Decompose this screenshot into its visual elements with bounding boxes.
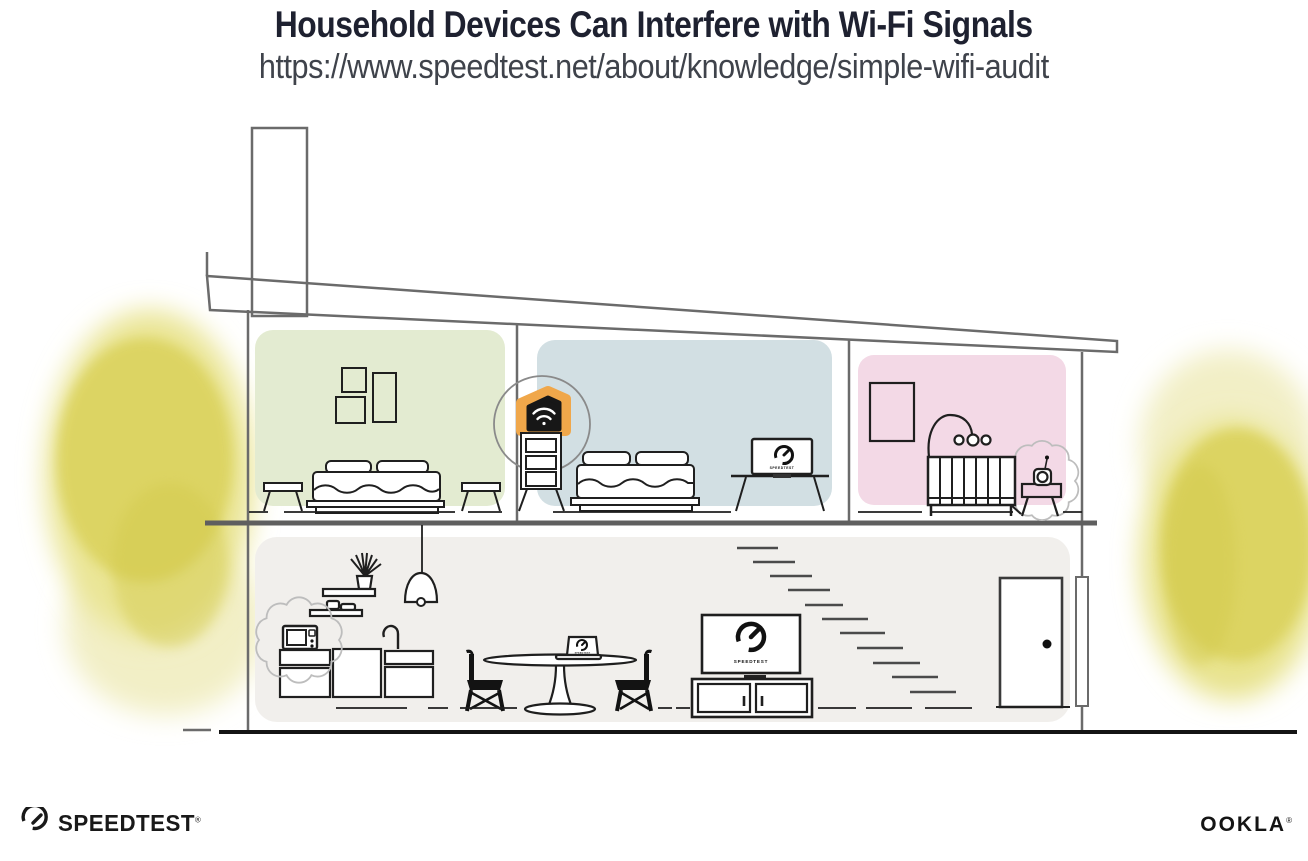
registered-mark: ® xyxy=(195,815,201,824)
shelf xyxy=(323,589,375,596)
source-url: https://www.speedtest.net/about/knowledg… xyxy=(259,48,1049,87)
speedtest-tv: SPEEDTEST xyxy=(702,615,800,679)
table-foot xyxy=(525,704,595,715)
kitchen-counter xyxy=(280,649,433,697)
tv-console xyxy=(692,679,812,717)
speedtest-wordmark: SPEEDTEST® xyxy=(58,810,201,837)
laptop-screen-label: SPEEDTEST xyxy=(575,653,591,655)
house-illustration: SPEEDTEST xyxy=(0,0,1308,861)
bed-base xyxy=(571,498,699,505)
infographic-page: SPEEDTEST xyxy=(0,0,1308,861)
door-knob xyxy=(1043,640,1052,649)
monitor-screen-label: SPEEDTEST xyxy=(770,466,795,470)
mattress xyxy=(577,465,694,498)
shelf xyxy=(310,610,362,616)
pillow xyxy=(636,452,688,465)
microwave xyxy=(283,626,317,649)
crib xyxy=(928,457,1021,516)
downspout xyxy=(1076,577,1088,706)
speedtest-logo: SPEEDTEST® xyxy=(16,807,206,839)
registered-mark: ® xyxy=(1286,816,1294,825)
ookla-logo: OOKLA® xyxy=(1200,813,1294,837)
front-door xyxy=(996,578,1070,707)
bed-base xyxy=(580,505,692,511)
pillow xyxy=(583,452,630,465)
header: Household Devices Can Interfere with Wi-… xyxy=(0,4,1308,87)
ookla-wordmark: OOKLA® xyxy=(1200,813,1294,836)
speedtest-gauge-icon xyxy=(16,807,50,839)
speedtest-monitor: SPEEDTEST xyxy=(752,439,812,478)
page-title: Household Devices Can Interfere with Wi-… xyxy=(275,4,1033,46)
foliage-left xyxy=(45,310,265,715)
foliage-right xyxy=(1140,350,1308,700)
tv-screen-label: SPEEDTEST xyxy=(734,659,769,664)
